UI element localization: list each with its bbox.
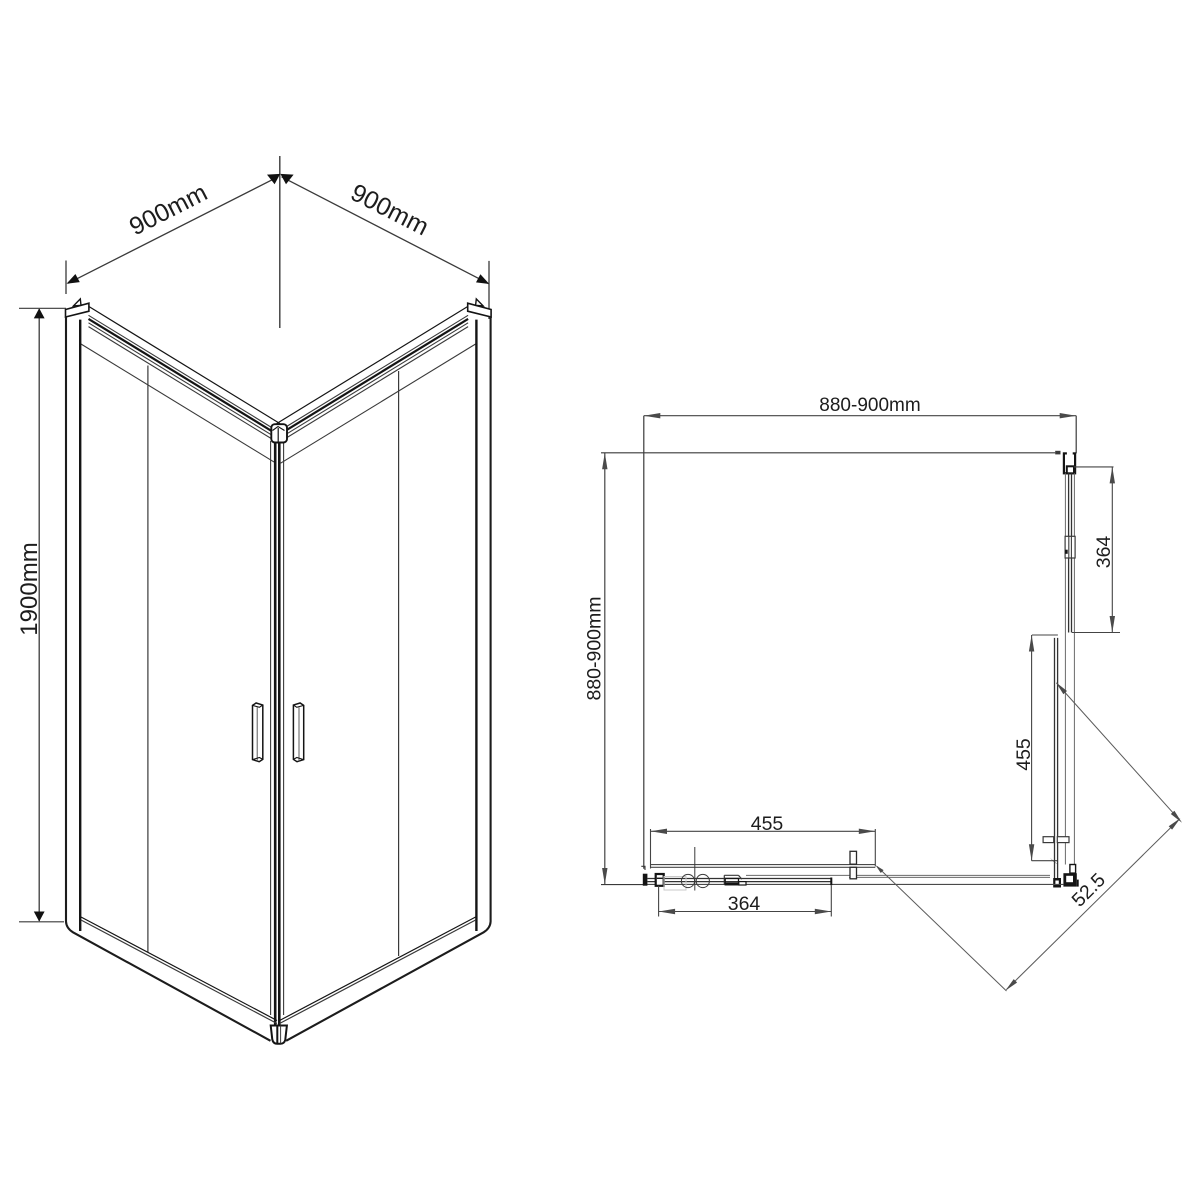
svg-text:364: 364	[1093, 536, 1115, 569]
svg-text:364: 364	[728, 893, 761, 915]
svg-text:455: 455	[1013, 738, 1035, 771]
svg-text:455: 455	[751, 813, 784, 835]
svg-text:880-900mm: 880-900mm	[584, 596, 606, 700]
svg-text:1900mm: 1900mm	[16, 542, 43, 635]
svg-text:880-900mm: 880-900mm	[819, 395, 920, 416]
